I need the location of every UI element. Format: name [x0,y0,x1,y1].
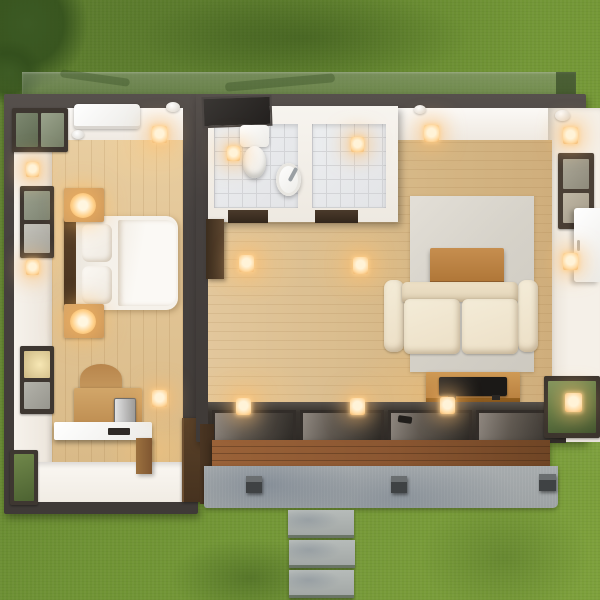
bathroom-skylight [201,95,272,128]
sofa-seat-cushion [462,299,518,354]
stepping-stone [288,510,354,538]
smoke-detector [72,130,84,139]
smoke-detector [555,110,570,121]
glass-canopy-edge [556,72,576,96]
wall-sconce [26,162,39,177]
bed-duvet [118,220,176,306]
hall-door-panel [206,219,224,279]
threshold-mat [315,210,358,223]
coffee-table [430,248,504,286]
toilet-tank [240,125,269,147]
floor-light [565,393,582,412]
smoke-detector [166,102,180,112]
patio-cube-light [539,474,556,491]
bedroom-window [20,346,54,414]
desk-side-panel [136,438,152,474]
smoke-detector [414,105,426,114]
downlight [351,137,364,152]
glass-door-pane [300,410,384,443]
downlight [152,390,167,407]
sofa-seat-cushion [404,299,460,354]
wall-sconce [26,260,39,275]
downlight [152,126,167,143]
stepping-stone [289,570,354,598]
deck-fascia [212,440,550,468]
sofa-armrest [518,280,538,352]
pillow [82,224,112,262]
desk-pad [108,428,130,435]
downlight [227,146,240,161]
transom-window [12,108,68,152]
downlight [563,127,578,144]
tv-foot [492,395,500,400]
sliding-glass-doors [208,402,566,442]
stepping-stone [289,540,355,568]
tv-screen [439,377,507,396]
glass-door-pane [212,410,296,443]
floor-light [236,398,251,415]
pillow [82,266,112,304]
ac-unit [74,104,140,129]
corner-glass [10,450,38,505]
downlight [353,257,368,274]
floor-light [350,398,365,415]
bedroom-window [20,186,54,258]
patio-cube-light [246,476,262,493]
downlight [563,253,578,270]
cabinet-handle [577,240,580,251]
downlight [424,125,439,142]
toilet-bowl [243,146,266,178]
patio-cube-light [391,476,407,493]
render-canvas [0,0,600,600]
bedroom-lounge-floor [14,462,183,502]
bed-headboard [64,218,76,310]
floor-light [440,397,455,414]
table-lamp [70,309,96,334]
downlight [239,255,254,272]
shower-floor [312,124,386,208]
threshold-mat [228,210,268,223]
sofa-armrest [384,280,404,352]
table-lamp [70,193,96,218]
